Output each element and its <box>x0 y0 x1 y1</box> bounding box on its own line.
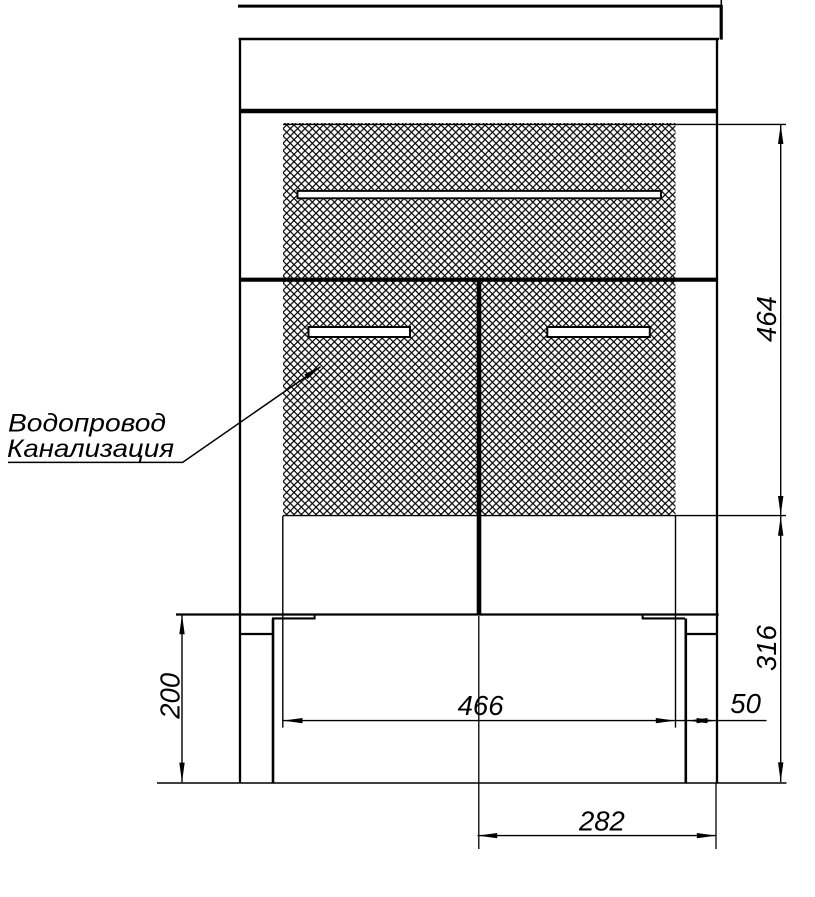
svg-text:50: 50 <box>730 688 761 719</box>
svg-text:Водопровод: Водопровод <box>8 409 166 437</box>
svg-text:282: 282 <box>578 806 625 837</box>
svg-text:466: 466 <box>458 690 505 721</box>
svg-text:316: 316 <box>751 624 782 671</box>
svg-text:Канализация: Канализация <box>7 435 174 463</box>
svg-text:464: 464 <box>751 296 782 342</box>
svg-text:200: 200 <box>155 672 186 720</box>
